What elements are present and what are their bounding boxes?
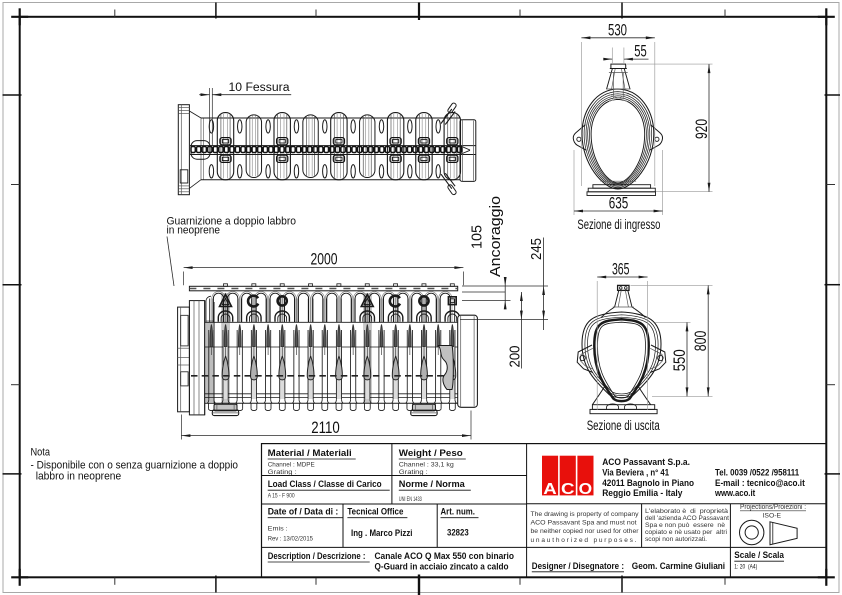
svg-text:Material / Materiali: Material / Materiali <box>268 448 352 458</box>
svg-text:Spa e non può essere nè: Spa e non può essere nè <box>645 522 725 529</box>
svg-text:Emis :: Emis : <box>268 526 288 533</box>
svg-text:in neoprene: in neoprene <box>167 225 221 237</box>
svg-text:Reggio Emilia - Italy: Reggio Emilia - Italy <box>602 488 683 498</box>
svg-text:Tel. 0039 /0522 /958111: Tel. 0039 /0522 /958111 <box>715 468 799 478</box>
svg-text:105: 105 <box>470 225 486 249</box>
svg-text:635: 635 <box>609 195 629 213</box>
svg-text:Designer / Disegnatore :: Designer / Disegnatore : <box>532 561 624 571</box>
svg-text:Grating :: Grating : <box>399 469 428 476</box>
svg-text:C: C <box>561 481 575 498</box>
svg-text:be neither copied nor used for: be neither copied nor used for other <box>531 528 640 535</box>
svg-text:42011 Bagnolo in Piano: 42011 Bagnolo in Piano <box>602 478 694 488</box>
svg-text:Scale / Scala: Scale / Scala <box>734 550 784 560</box>
svg-text:Projections/Proiezioni :: Projections/Proiezioni : <box>740 504 806 511</box>
svg-text:550: 550 <box>671 349 689 371</box>
svg-text:Sezione di uscita: Sezione di uscita <box>587 418 660 433</box>
svg-text:Art. num.: Art. num. <box>441 507 475 517</box>
svg-text:Sezione di ingresso: Sezione di ingresso <box>577 217 660 232</box>
svg-text:UNI EN 1433: UNI EN 1433 <box>399 496 422 503</box>
svg-text:The drawing is property of com: The drawing is property of company <box>531 511 640 518</box>
svg-text:Q-Guard in acciaio zincato a c: Q-Guard in acciaio zincato a caldo <box>375 561 509 571</box>
svg-text:ACO Passavant Spa and must not: ACO Passavant Spa and must not <box>531 520 637 527</box>
svg-text:E-mail : tecnico@aco.it: E-mail : tecnico@aco.it <box>715 478 805 488</box>
svg-text:Grating :: Grating : <box>268 469 297 476</box>
svg-text:32823: 32823 <box>447 528 469 538</box>
svg-text:ISO-E: ISO-E <box>763 512 782 519</box>
svg-text:copiato e nè usato per altri: copiato e nè usato per altri <box>645 529 727 536</box>
svg-text:Date of / Data di :: Date of / Data di : <box>268 507 339 517</box>
svg-text:Canale ACO Q Max 550 con binar: Canale ACO Q Max 550 con binario <box>375 551 515 561</box>
svg-text:A: A <box>543 481 557 498</box>
svg-text:2110: 2110 <box>311 418 340 437</box>
svg-text:Description / Descrizione :: Description / Descrizione : <box>268 551 366 561</box>
svg-text:1: 20 (A4): 1: 20 (A4) <box>734 564 757 571</box>
svg-text:Geom. Carmine Giuliani: Geom. Carmine Giuliani <box>632 561 725 571</box>
svg-text:Via Beviera , n° 41: Via Beviera , n° 41 <box>602 468 669 478</box>
svg-text:scopi non autorizzati.: scopi non autorizzati. <box>645 536 707 543</box>
svg-text:Tecnical Office: Tecnical Office <box>347 507 403 517</box>
svg-text:Channel : MDPE: Channel : MDPE <box>268 462 316 469</box>
svg-text:labbro in neoprene: labbro in neoprene <box>36 471 122 483</box>
svg-text:800: 800 <box>692 331 710 352</box>
svg-text:200: 200 <box>508 346 524 368</box>
svg-text:Load Class / Classe di Carico: Load Class / Classe di Carico <box>268 479 382 489</box>
svg-text:O: O <box>579 481 593 498</box>
svg-text:Nota: Nota <box>31 447 51 459</box>
svg-text:Rev : 13/02/2015: Rev : 13/02/2015 <box>268 536 314 543</box>
svg-text:dell 'azienda ACO Passavant: dell 'azienda ACO Passavant <box>645 515 729 522</box>
svg-text:A 15 - F 900: A 15 - F 900 <box>268 493 295 500</box>
svg-text:920: 920 <box>693 119 711 139</box>
svg-text:245: 245 <box>529 238 545 260</box>
svg-text:ACO Passavant S.p.a.: ACO Passavant S.p.a. <box>602 457 690 467</box>
svg-text:L'elaborato è di proprietà: L'elaborato è di proprietà <box>645 508 728 515</box>
svg-text:Ing . Marco Pizzi: Ing . Marco Pizzi <box>351 528 413 538</box>
svg-text:Channel : 33,1 kg: Channel : 33,1 kg <box>399 462 454 469</box>
svg-text:10 Fessura: 10 Fessura <box>229 82 291 94</box>
svg-text:Ancoraggio: Ancoraggio <box>488 196 504 277</box>
svg-text:2000: 2000 <box>311 249 338 268</box>
svg-text:u n a u t h o r i z e d p u: u n a u t h o r i z e d p u r p o s e s … <box>531 537 637 544</box>
svg-text:365: 365 <box>612 261 630 279</box>
svg-text:55: 55 <box>634 43 647 61</box>
svg-text:Weight / Peso: Weight / Peso <box>399 448 463 458</box>
svg-text:www.aco.it: www.aco.it <box>714 488 755 498</box>
svg-text:Norme / Norma: Norme / Norma <box>399 479 466 489</box>
svg-text:530: 530 <box>608 22 627 40</box>
